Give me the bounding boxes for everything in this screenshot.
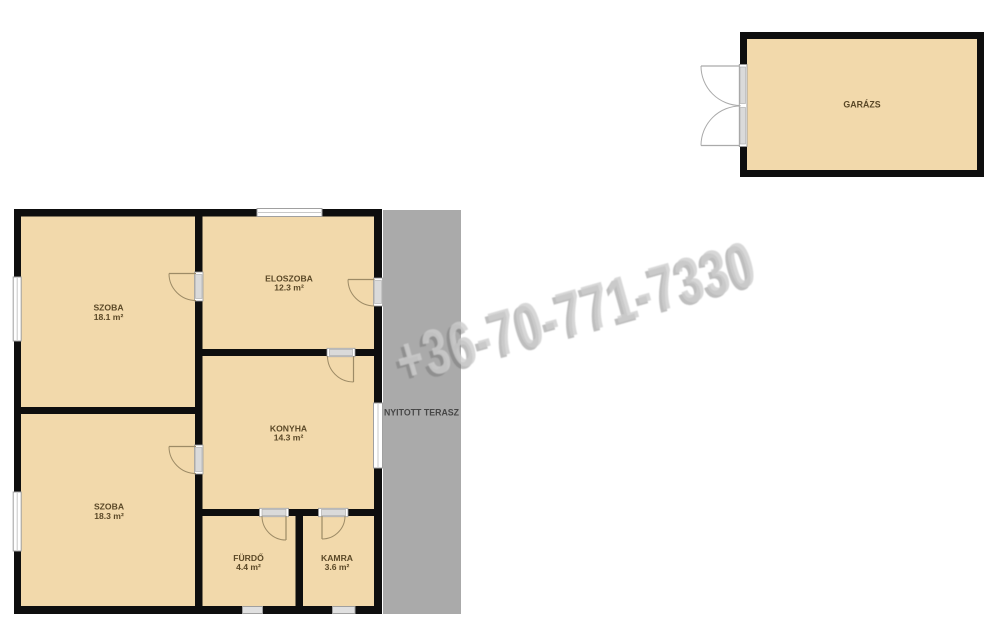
svg-text:GARÁZS: GARÁZS <box>843 100 880 110</box>
svg-text:18.1 m²: 18.1 m² <box>94 312 124 322</box>
svg-text:18.3 m²: 18.3 m² <box>94 511 124 521</box>
svg-text:12.3 m²: 12.3 m² <box>274 282 304 292</box>
svg-text:NYITOTT TERASZ: NYITOTT TERASZ <box>384 408 460 418</box>
svg-text:3.6 m²: 3.6 m² <box>325 562 350 572</box>
svg-text:14.3 m²: 14.3 m² <box>274 432 304 442</box>
svg-text:4.4 m²: 4.4 m² <box>236 562 261 572</box>
